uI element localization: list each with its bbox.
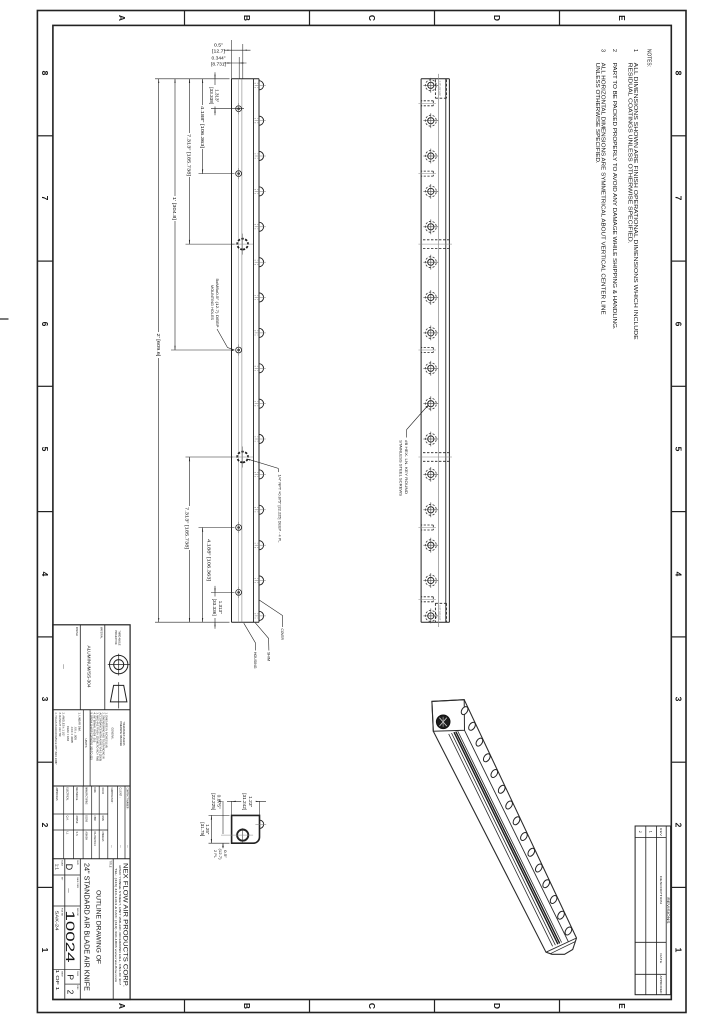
svg-text:2 PL: 2 PL xyxy=(213,850,218,859)
svg-text:[12.7]: [12.7] xyxy=(212,48,225,53)
svg-text:B: B xyxy=(242,15,252,21)
svg-text:01/29/2014: 01/29/2014 xyxy=(93,832,96,847)
svg-text:REVISIONS: REVISIONS xyxy=(666,897,670,924)
svg-text:2. ANGLES ± 1 1/2°: 2. ANGLES ± 1 1/2° xyxy=(62,713,65,737)
svg-text:D: D xyxy=(64,864,74,871)
svg-text:7: 7 xyxy=(40,196,50,201)
svg-text:MATERIAL: MATERIAL xyxy=(100,627,104,639)
svg-text:4.188" [106.363]: 4.188" [106.363] xyxy=(207,539,212,581)
svg-text:8: 8 xyxy=(673,71,683,76)
svg-text:HOUSING: HOUSING xyxy=(253,652,257,669)
svg-text:DSGN: DSGN xyxy=(76,971,78,976)
svg-text:—: — xyxy=(67,888,72,893)
svg-text:S.S: S.S xyxy=(75,832,78,837)
svg-text:1/4" NPT ×0.875" [22.225] DEEP: 1/4" NPT ×0.875" [22.225] DEEP - 4 PL xyxy=(278,475,282,543)
svg-text:.XXX ± .0005: .XXX ± .0005 xyxy=(70,726,73,744)
svg-text:STAINLESS STEEL SCREWS: STAINLESS STEEL SCREWS xyxy=(399,440,403,497)
svg-text:RESIDUAL COATINGS UNLESS OTHER: RESIDUAL COATINGS UNLESS OTHERWISE SPECI… xyxy=(626,63,632,244)
svg-text:APPRVD: APPRVD xyxy=(75,816,78,824)
svg-text:4. HOLES IN ACCORDANCE WITH AN: 4. HOLES IN ACCORDANCE WITH AND 10387 xyxy=(54,713,57,766)
svg-text:APPROVALS: APPROVALS xyxy=(55,788,58,801)
svg-text:CAGE CODE: CAGE CODE xyxy=(76,877,79,888)
svg-text:0.344": 0.344" xyxy=(212,56,226,61)
svg-text:7.313" [185.738]: 7.313" [185.738] xyxy=(187,134,192,176)
svg-text:6: 6 xyxy=(673,322,683,327)
svg-text:[33.336]: [33.336] xyxy=(212,599,217,616)
svg-text:DATE: DATE xyxy=(659,953,663,963)
svg-text:—: — xyxy=(119,845,123,848)
svg-text:5: 5 xyxy=(673,447,683,452)
svg-text:CHKD: CHKD xyxy=(93,816,96,821)
svg-text:—: — xyxy=(110,845,114,848)
svg-text:5: 5 xyxy=(40,447,50,452)
svg-text:TEL: (416) 410-1313 & FAX: (41: TEL: (416) 410-1313 & FAX: (416) 410-180… xyxy=(114,868,118,983)
svg-text:CHEMALS: CHEMALS xyxy=(101,832,104,842)
svg-text:[22.225]: [22.225] xyxy=(211,793,216,810)
svg-text:—: — xyxy=(125,845,129,848)
svg-text:TOLERANCES UNLESS: TOLERANCES UNLESS xyxy=(122,722,126,746)
svg-text:E: E xyxy=(617,1003,627,1009)
svg-text:A: A xyxy=(117,1003,127,1009)
svg-text:DRWN: DRWN xyxy=(101,816,104,821)
svg-text:1.313": 1.313" xyxy=(218,601,223,614)
svg-text:UNITS: UNITS xyxy=(84,739,88,748)
svg-text:ALUMINUM/SS-304: ALUMINUM/SS-304 xyxy=(87,646,92,689)
svg-text:FILE NO: FILE NO xyxy=(61,908,63,916)
svg-text:REV: REV xyxy=(659,828,663,836)
svg-text:1 OF 1: 1 OF 1 xyxy=(55,970,60,992)
svg-text:APPROVED: APPROVED xyxy=(659,976,663,995)
svg-text:PROJECTION: PROJECTION xyxy=(114,631,118,645)
svg-text:E: E xyxy=(617,15,627,21)
svg-text:GENERAL: GENERAL xyxy=(110,728,114,740)
svg-text:OUTLINE DRAWING OF: OUTLINE DRAWING OF xyxy=(95,890,102,964)
svg-text:FINISH: FINISH xyxy=(75,627,79,636)
svg-text:1.313": 1.313" xyxy=(215,89,220,102)
svg-text:4: 4 xyxy=(673,572,683,577)
svg-text:3: 3 xyxy=(599,49,605,52)
svg-text:1: 1 xyxy=(632,49,638,52)
svg-text:2: 2 xyxy=(611,49,617,52)
svg-text:CLIENT :: CLIENT : xyxy=(119,788,122,798)
svg-text:SCALE: SCALE xyxy=(61,860,64,866)
svg-text:REV: REV xyxy=(76,986,78,990)
svg-text:FRAC ± 1/64: FRAC ± 1/64 xyxy=(66,726,69,742)
svg-text:LL: LL xyxy=(66,832,69,835)
svg-text:4: 4 xyxy=(40,572,50,577)
svg-text:8: 8 xyxy=(40,71,50,76)
svg-text:2: 2 xyxy=(65,990,74,995)
svg-text:1: 1 xyxy=(673,948,683,953)
svg-text:ASHISH: ASHISH xyxy=(85,832,88,841)
svg-text:SAK-24: SAK-24 xyxy=(55,911,60,932)
svg-text:C: C xyxy=(367,1003,377,1009)
svg-text:4.188" [106.363]: 4.188" [106.363] xyxy=(200,106,205,148)
svg-text:SHIM: SHIM xyxy=(267,652,271,661)
svg-text:D: D xyxy=(492,15,502,21)
svg-text:2' [609.6]: 2' [609.6] xyxy=(156,334,161,357)
svg-text:7: 7 xyxy=(673,196,683,201)
svg-text:—: — xyxy=(61,664,66,669)
svg-text:2: 2 xyxy=(40,823,50,828)
svg-text:1.23": 1.23" xyxy=(248,796,253,807)
svg-text:[33.338]: [33.338] xyxy=(209,87,214,104)
svg-text:C: C xyxy=(367,15,377,21)
svg-text:0.08" AIR GAP: 0.08" AIR GAP xyxy=(438,81,441,96)
svg-text:SIZE: SIZE xyxy=(76,860,78,866)
svg-text:DSGND: DSGND xyxy=(85,816,88,823)
svg-text:MECHANICAL: MECHANICAL xyxy=(75,788,78,802)
svg-text:3: 3 xyxy=(40,697,50,702)
svg-text:COVER: COVER xyxy=(280,629,284,641)
svg-text:0.875": 0.875" xyxy=(217,795,222,809)
svg-text:CONTRACTOR :: CONTRACTOR : xyxy=(110,788,113,804)
svg-text:2: 2 xyxy=(673,823,683,828)
svg-text:PART TO BE PACKED PROPERLY TO: PART TO BE PACKED PROPERLY TO AVOID ANY … xyxy=(611,63,617,330)
svg-text:NOTES:: NOTES: xyxy=(646,49,652,67)
svg-text:2: 2 xyxy=(638,831,642,833)
svg-text:WT: WT xyxy=(61,877,63,881)
svg-text:0.5": 0.5" xyxy=(214,42,223,47)
svg-text:B: B xyxy=(242,1003,252,1009)
svg-text:7.313" [185.738]: 7.313" [185.738] xyxy=(185,507,190,549)
svg-text:10024: 10024 xyxy=(63,911,77,963)
svg-text:6: 6 xyxy=(40,322,50,327)
svg-text:3: 3 xyxy=(673,697,683,702)
svg-text:1: 1 xyxy=(649,831,653,833)
svg-text:TITLE: TITLE xyxy=(109,861,113,868)
svg-text:MOUNTING HOLES: MOUNTING HOLES xyxy=(210,285,214,321)
svg-text:#8 HEX. LN. KEY ROUND: #8 HEX. LN. KEY ROUND xyxy=(404,440,408,495)
svg-text:1: 1 xyxy=(40,948,50,953)
svg-text:A: A xyxy=(117,15,127,21)
svg-text:DRAWN: DRAWN xyxy=(101,788,104,795)
svg-text:5xM8x0.5" (12.7) DEEP: 5xM8x0.5" (12.7) DEEP xyxy=(215,279,219,329)
svg-text:1:1: 1:1 xyxy=(55,864,60,871)
svg-text:[31.75]: [31.75] xyxy=(200,822,205,836)
svg-text:1. LINEAR DIM.: 1. LINEAR DIM. xyxy=(77,713,80,732)
svg-text:DATE: DATE xyxy=(93,788,96,794)
svg-text:24" STANDARD AIR BLADE AIR KNI: 24" STANDARD AIR BLADE AIR KNIFE xyxy=(82,863,91,991)
svg-text:P: P xyxy=(65,974,74,980)
svg-text:OTHERWISE SPECIFIED: OTHERWISE SPECIFIED xyxy=(119,721,123,746)
svg-text:D: D xyxy=(492,1003,502,1009)
svg-text:0.08" AIR GAP: 0.08" AIR GAP xyxy=(438,605,441,620)
svg-text:[31.242]: [31.242] xyxy=(242,793,247,810)
svg-text:1' [304.8]: 1' [304.8] xyxy=(172,197,177,220)
svg-text:MANUFACTURING: MANUFACTURING xyxy=(85,788,88,805)
svg-text:3. RUNOUT .010 TIR: 3. RUNOUT .010 TIR xyxy=(58,713,61,737)
svg-text:DESCRIPTION: DESCRIPTION xyxy=(659,876,663,904)
svg-text:Q.A.: Q.A. xyxy=(66,816,69,822)
svg-text:[8.731]: [8.731] xyxy=(211,62,226,67)
svg-text:ELECTRICAL: ELECTRICAL xyxy=(66,788,69,802)
svg-text:CONTRACT NUMBER :: CONTRACT NUMBER : xyxy=(125,788,128,810)
svg-text:.XX ± .005: .XX ± .005 xyxy=(73,726,76,741)
svg-text:UNLESS OTHERWISE SPECIFIED.: UNLESS OTHERWISE SPECIFIED. xyxy=(594,63,600,164)
